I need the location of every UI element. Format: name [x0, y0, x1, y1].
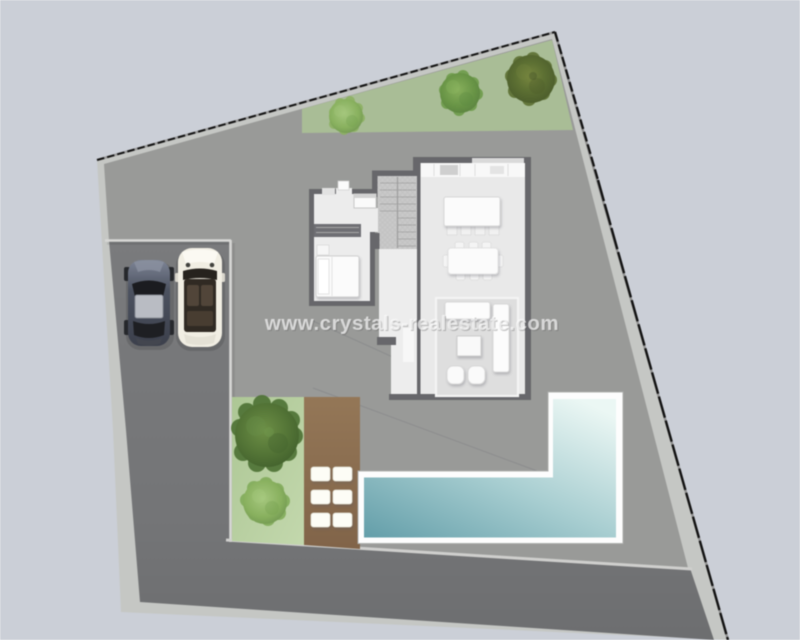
svg-text:www.crystals-realestate.com: www.crystals-realestate.com — [264, 312, 559, 335]
